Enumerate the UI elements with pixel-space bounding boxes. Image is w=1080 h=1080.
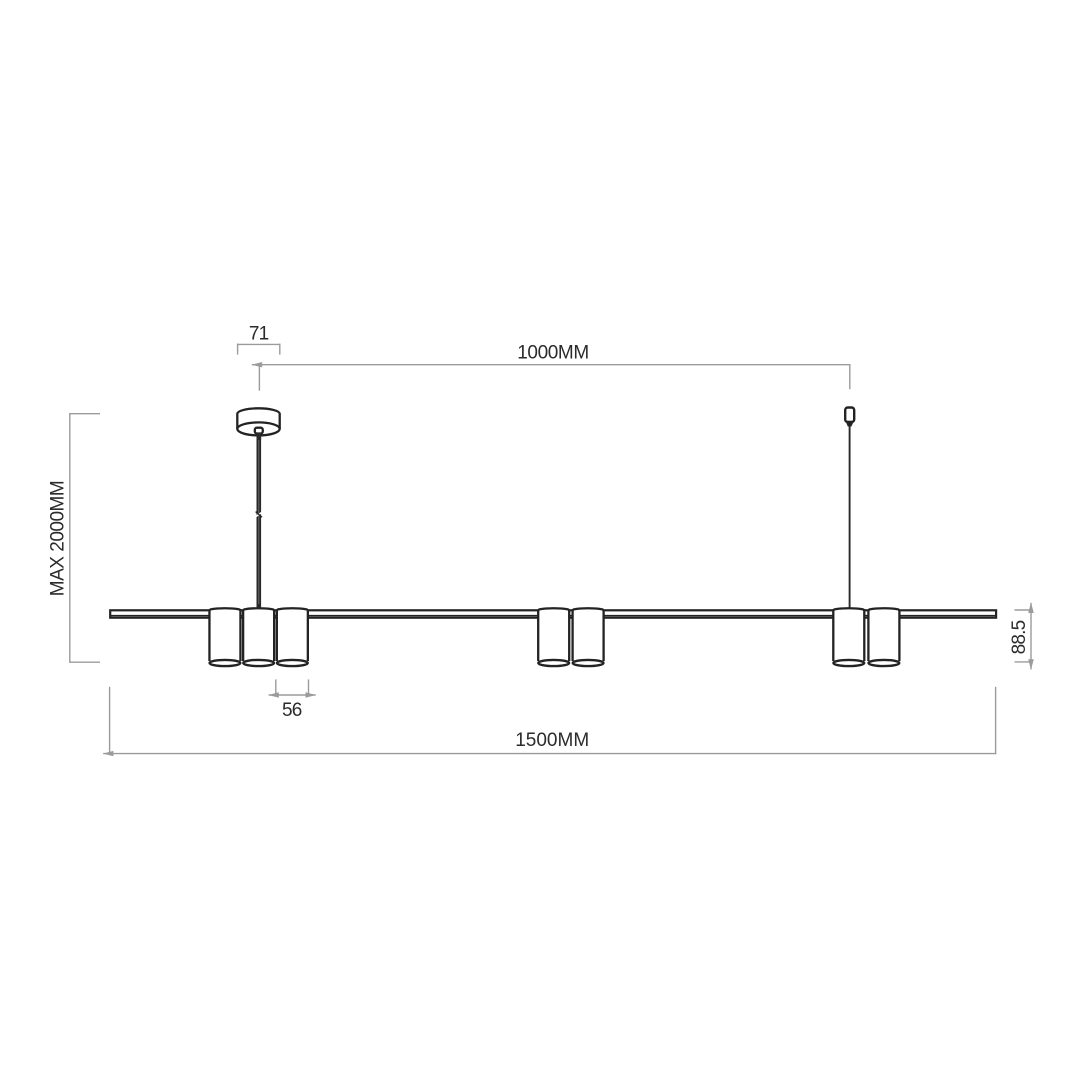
svg-text:1500MM: 1500MM bbox=[515, 730, 589, 751]
svg-text:MAX 2000MM: MAX 2000MM bbox=[48, 481, 69, 596]
svg-text:56: 56 bbox=[282, 700, 302, 721]
svg-text:88.5: 88.5 bbox=[1009, 620, 1030, 654]
svg-text:1000MM: 1000MM bbox=[517, 343, 589, 364]
svg-text:71: 71 bbox=[249, 323, 269, 344]
